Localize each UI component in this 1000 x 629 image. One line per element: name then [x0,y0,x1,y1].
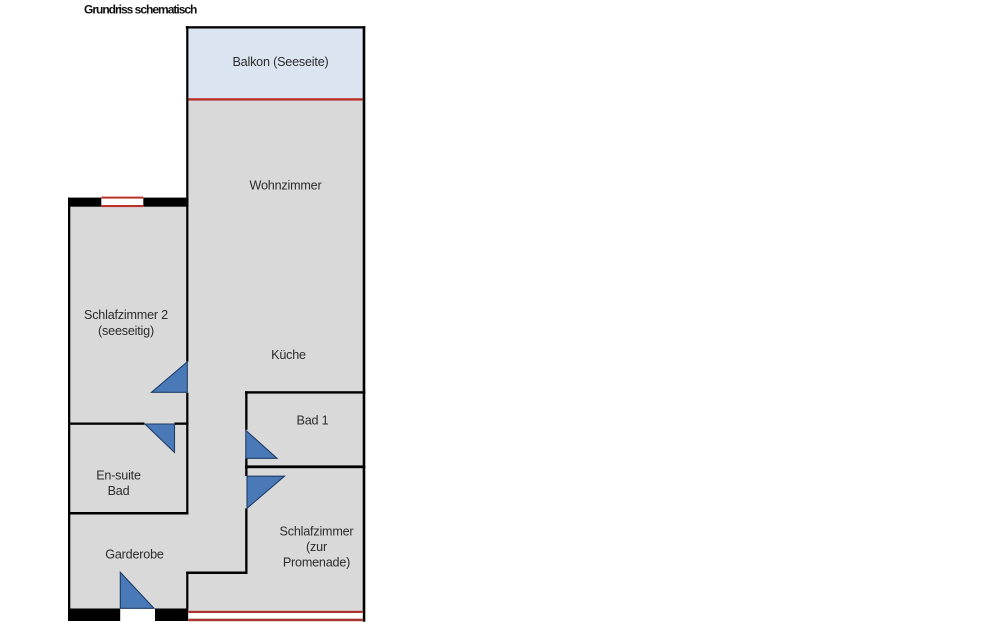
svg-text:Bad: Bad [108,484,130,498]
svg-text:Grundriss schematisch: Grundriss schematisch [84,3,197,17]
svg-text:Bad 1: Bad 1 [297,414,329,428]
svg-text:Wohnzimmer: Wohnzimmer [250,179,322,193]
svg-text:Promenade): Promenade) [283,556,350,570]
svg-text:En-suite: En-suite [96,469,141,483]
svg-text:Balkon (Seeseite): Balkon (Seeseite) [232,55,328,69]
svg-text:(zur: (zur [306,540,327,554]
svg-text:Schlafzimmer: Schlafzimmer [280,525,354,539]
svg-text:Garderobe: Garderobe [105,548,164,562]
svg-text:(seeseitig): (seeseitig) [98,324,154,338]
svg-text:Küche: Küche [271,348,306,362]
svg-text:Schlafzimmer 2: Schlafzimmer 2 [84,308,168,322]
